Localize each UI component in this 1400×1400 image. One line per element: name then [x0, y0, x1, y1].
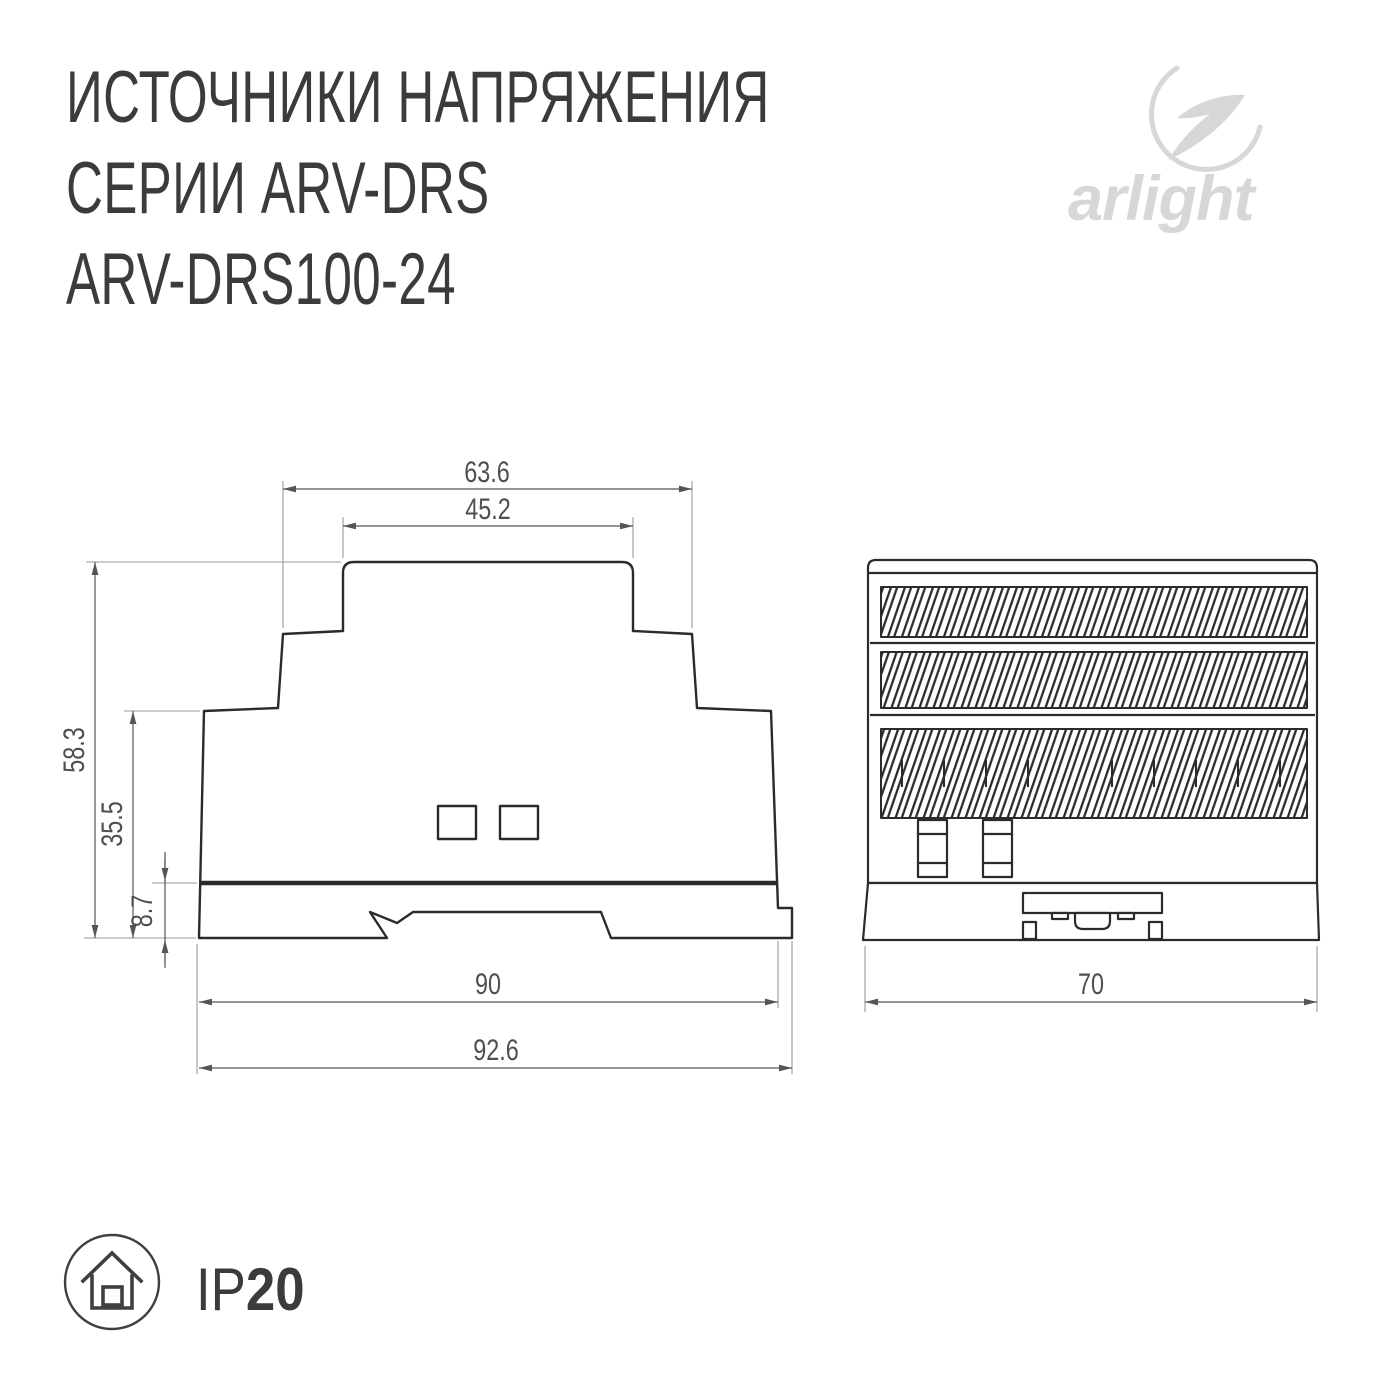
dim-body-height-label: 35.5: [95, 801, 128, 847]
dim-cap-width-label: 45.2: [465, 492, 511, 525]
dim-overall-width-label: 92.6: [473, 1033, 519, 1066]
front-view-led-window-2: [500, 806, 538, 839]
house-icon: [83, 1253, 141, 1308]
side-view-terminal-2: [983, 820, 1012, 877]
dim-body-width-label: 90: [475, 967, 501, 1000]
dim-top-outer-width-label: 63.6: [464, 455, 510, 488]
front-view-led-window-1: [438, 806, 476, 839]
ip20-icon-circle: [65, 1235, 159, 1329]
dim-depth-label: 70: [1078, 967, 1104, 1000]
side-view-terminal-1: [918, 820, 947, 877]
ip20-indoor-icon: [65, 1235, 159, 1329]
side-view-drawing: [863, 560, 1319, 940]
front-view-drawing: [199, 562, 792, 938]
dim-base-height-label: 8.7: [125, 895, 158, 928]
technical-drawing: 63.6 45.2 58.3 35.5 8.7 90 92.6 70: [0, 0, 1400, 1400]
side-view-vent-band-2: [881, 652, 1307, 708]
arlight-logo-icon: [1151, 68, 1260, 169]
side-view-vent-band-1: [881, 587, 1307, 637]
dim-total-height-label: 58.3: [57, 727, 90, 773]
